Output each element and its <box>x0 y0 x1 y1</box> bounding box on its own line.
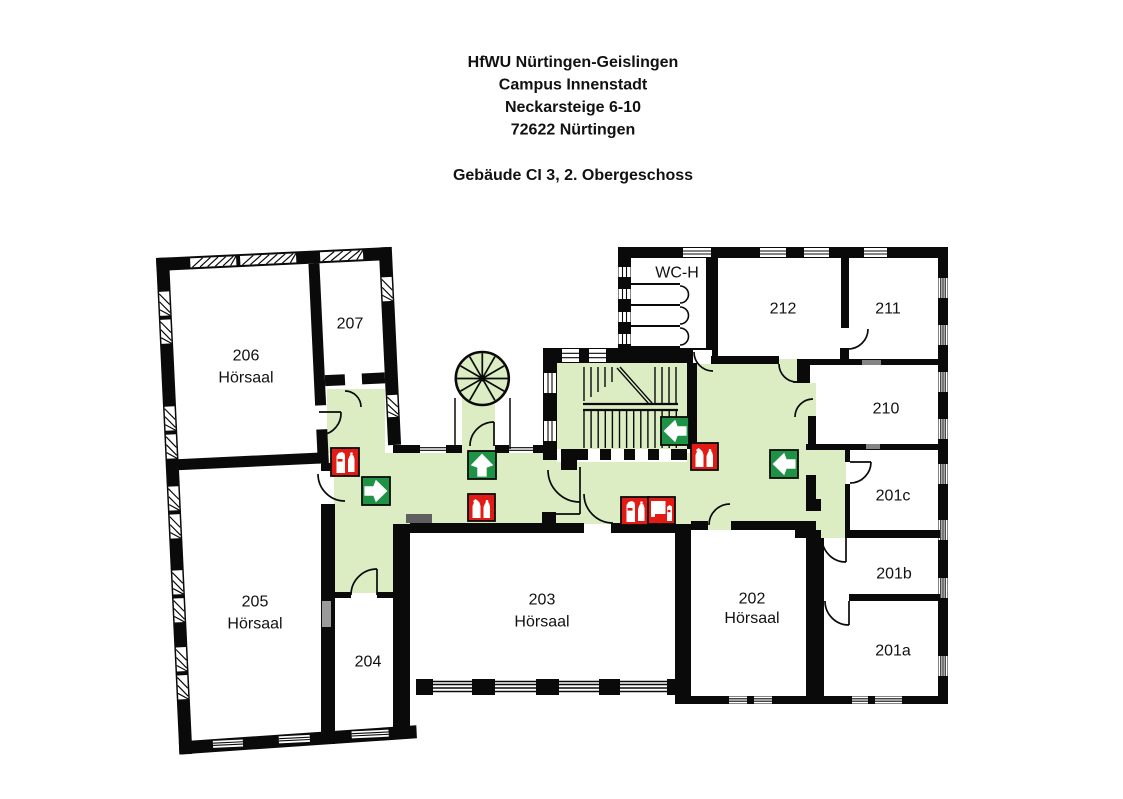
svg-text:Campus Innenstadt: Campus Innenstadt <box>499 77 648 94</box>
svg-text:210: 210 <box>873 401 900 418</box>
svg-text:HfWU Nürtingen-Geislingen: HfWU Nürtingen-Geislingen <box>468 54 679 71</box>
svg-text:Hörsaal: Hörsaal <box>218 370 273 387</box>
svg-text:201a: 201a <box>875 643 911 660</box>
svg-text:WC-H: WC-H <box>655 265 699 282</box>
svg-text:Neckarsteige 6-10: Neckarsteige 6-10 <box>505 99 641 116</box>
svg-text:206: 206 <box>233 348 260 365</box>
svg-text:201c: 201c <box>876 488 911 505</box>
svg-text:Hörsaal: Hörsaal <box>514 614 569 631</box>
svg-text:Gebäude CI 3, 2. Obergeschoss: Gebäude CI 3, 2. Obergeschoss <box>453 167 693 184</box>
svg-text:72622 Nürtingen: 72622 Nürtingen <box>511 122 635 139</box>
svg-text:211: 211 <box>875 301 901 318</box>
svg-text:Hörsaal: Hörsaal <box>724 610 779 627</box>
svg-text:207: 207 <box>337 316 364 333</box>
svg-text:202: 202 <box>739 591 766 608</box>
svg-text:212: 212 <box>770 301 797 318</box>
svg-text:204: 204 <box>355 654 382 671</box>
svg-text:205: 205 <box>242 594 269 611</box>
svg-text:201b: 201b <box>876 566 912 583</box>
svg-text:203: 203 <box>529 592 556 609</box>
svg-text:Hörsaal: Hörsaal <box>227 616 282 633</box>
